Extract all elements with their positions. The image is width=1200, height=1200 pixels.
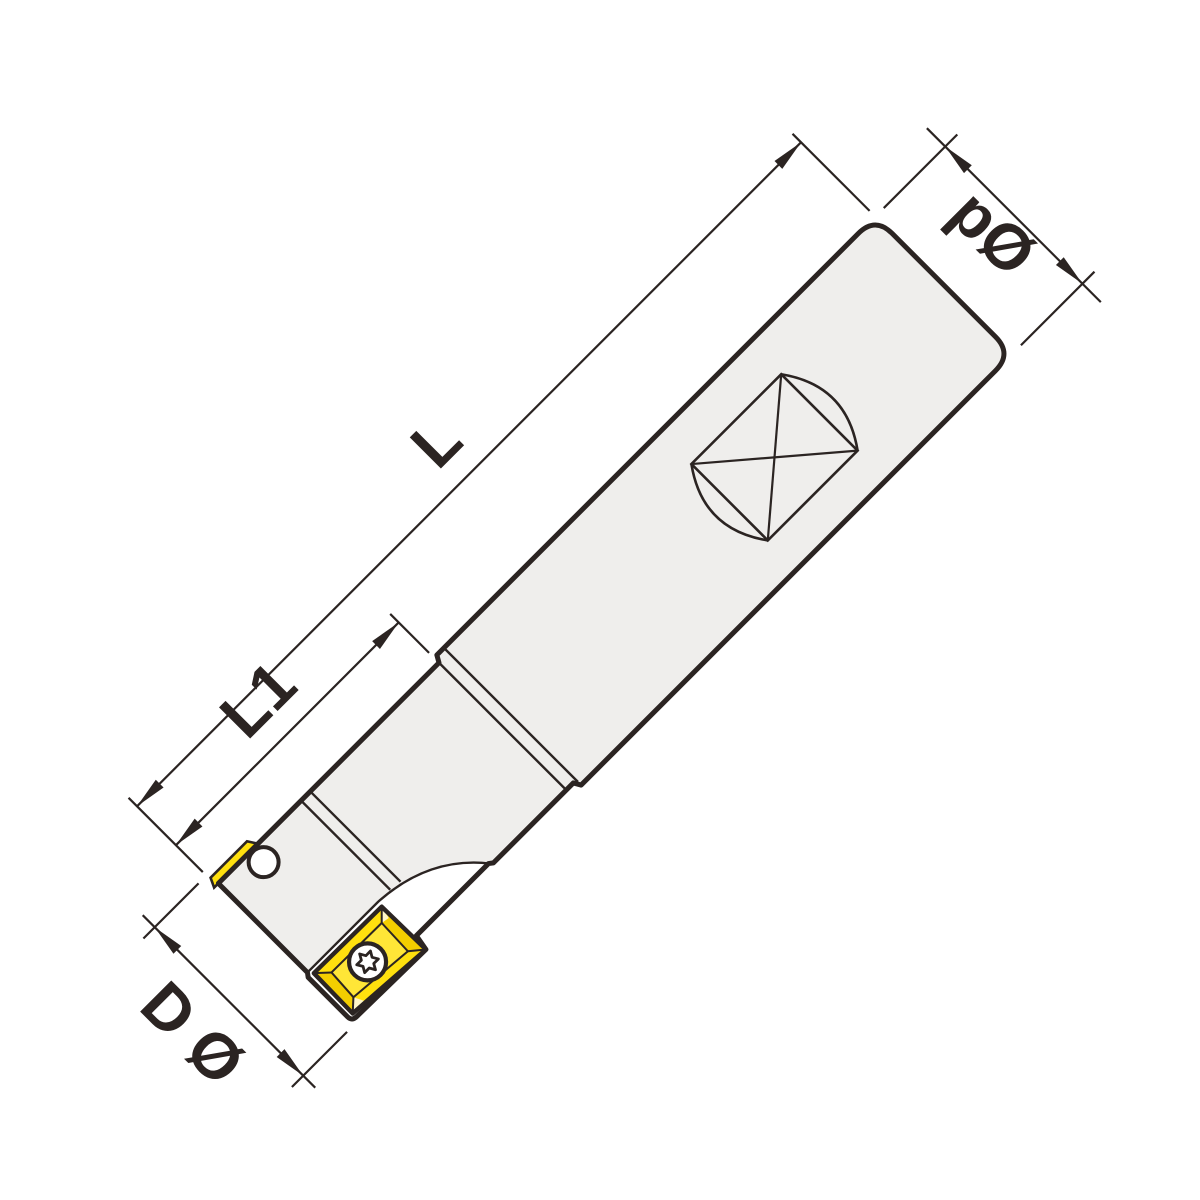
- extension-line: [390, 614, 429, 653]
- tool-body-fill: [211, 217, 1017, 1023]
- dimension-L-label: L: [397, 403, 476, 482]
- arrowhead: [372, 619, 402, 649]
- extension-line: [884, 135, 958, 209]
- extension-line: [793, 134, 870, 211]
- arrowhead: [941, 143, 971, 173]
- extension-line: [143, 883, 198, 938]
- dimension-cutting-diameter-label: D Ø: [127, 968, 258, 1099]
- extension-line: [292, 1032, 347, 1087]
- dimension-L1-label: L1: [206, 648, 310, 752]
- arrowhead: [277, 1049, 307, 1079]
- tool-body: [207, 215, 1018, 1026]
- arrowhead: [133, 780, 163, 810]
- arrowhead: [151, 923, 181, 953]
- dimension-shank-diameter-label: pØ: [936, 176, 1050, 290]
- arrowhead: [172, 819, 202, 849]
- extension-line: [129, 798, 203, 872]
- technical-drawing-page: L L1 pØ: [0, 0, 1200, 1200]
- extension-line: [1021, 272, 1095, 346]
- arrowhead: [1056, 257, 1086, 287]
- arrowhead: [774, 138, 804, 168]
- end-mill-technical-drawing: L L1 pØ: [0, 0, 1200, 1200]
